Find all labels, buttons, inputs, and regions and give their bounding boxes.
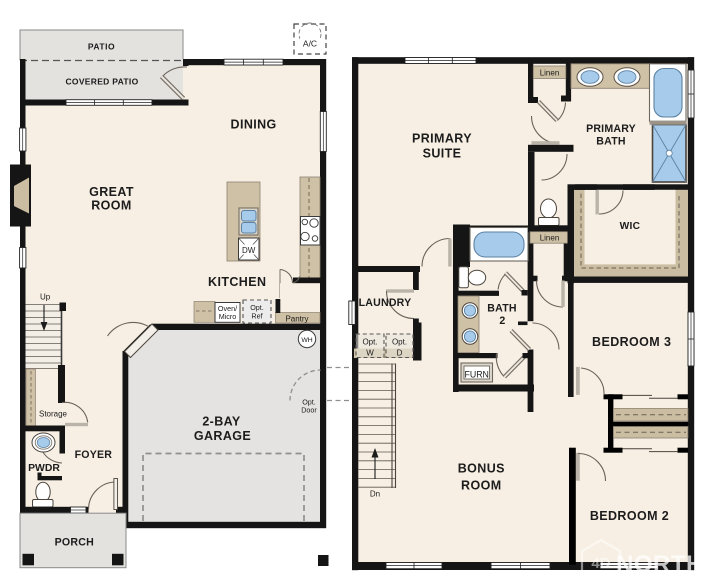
svg-text:BATH: BATH	[596, 136, 625, 148]
svg-text:Ref: Ref	[251, 312, 262, 321]
svg-text:BONUS: BONUS	[458, 462, 505, 476]
svg-text:SUITE: SUITE	[423, 146, 462, 160]
svg-text:D: D	[397, 349, 403, 358]
svg-text:BATH: BATH	[487, 303, 516, 315]
svg-text:Up: Up	[40, 293, 51, 302]
svg-text:PRIMARY: PRIMARY	[412, 131, 472, 145]
svg-text:A/C: A/C	[303, 39, 317, 49]
svg-text:FOYER: FOYER	[75, 449, 113, 461]
svg-text:Pantry: Pantry	[285, 314, 308, 323]
svg-text:FURN: FURN	[464, 370, 488, 380]
svg-text:DW: DW	[242, 246, 256, 255]
svg-text:4D: 4D	[591, 555, 610, 572]
svg-text:COVERED PATIO: COVERED PATIO	[65, 77, 138, 87]
svg-text:Opt.: Opt.	[392, 338, 407, 347]
svg-text:DINING: DINING	[231, 117, 277, 131]
svg-text:Opt.: Opt.	[362, 338, 377, 347]
svg-text:BEDROOM 3: BEDROOM 3	[592, 335, 671, 349]
svg-text:Linen: Linen	[540, 234, 560, 243]
svg-text:W: W	[366, 349, 374, 358]
svg-text:KITCHEN: KITCHEN	[208, 275, 266, 289]
svg-text:Linen: Linen	[540, 69, 560, 78]
svg-text:Micro: Micro	[219, 312, 237, 321]
svg-text:LAUNDRY: LAUNDRY	[359, 297, 412, 309]
svg-text:WIC: WIC	[620, 221, 641, 232]
svg-text:Dn: Dn	[370, 490, 380, 499]
svg-text:ROOM: ROOM	[461, 479, 502, 493]
svg-text:WH: WH	[301, 337, 312, 344]
svg-text:GARAGE: GARAGE	[194, 429, 251, 443]
svg-text:GREAT: GREAT	[89, 185, 134, 199]
svg-text:PATIO: PATIO	[88, 41, 115, 51]
svg-text:PWDR: PWDR	[28, 463, 60, 474]
svg-text:PRIMARY: PRIMARY	[586, 123, 636, 135]
svg-text:Door: Door	[301, 406, 317, 415]
svg-text:NORTHWEST: NORTHWEST	[616, 551, 720, 578]
svg-text:2: 2	[499, 315, 505, 327]
svg-text:Storage: Storage	[39, 410, 68, 419]
svg-text:PORCH: PORCH	[55, 537, 94, 549]
svg-text:BEDROOM 2: BEDROOM 2	[590, 509, 669, 523]
svg-text:ROOM: ROOM	[91, 199, 132, 213]
svg-text:2-BAY: 2-BAY	[202, 414, 241, 428]
